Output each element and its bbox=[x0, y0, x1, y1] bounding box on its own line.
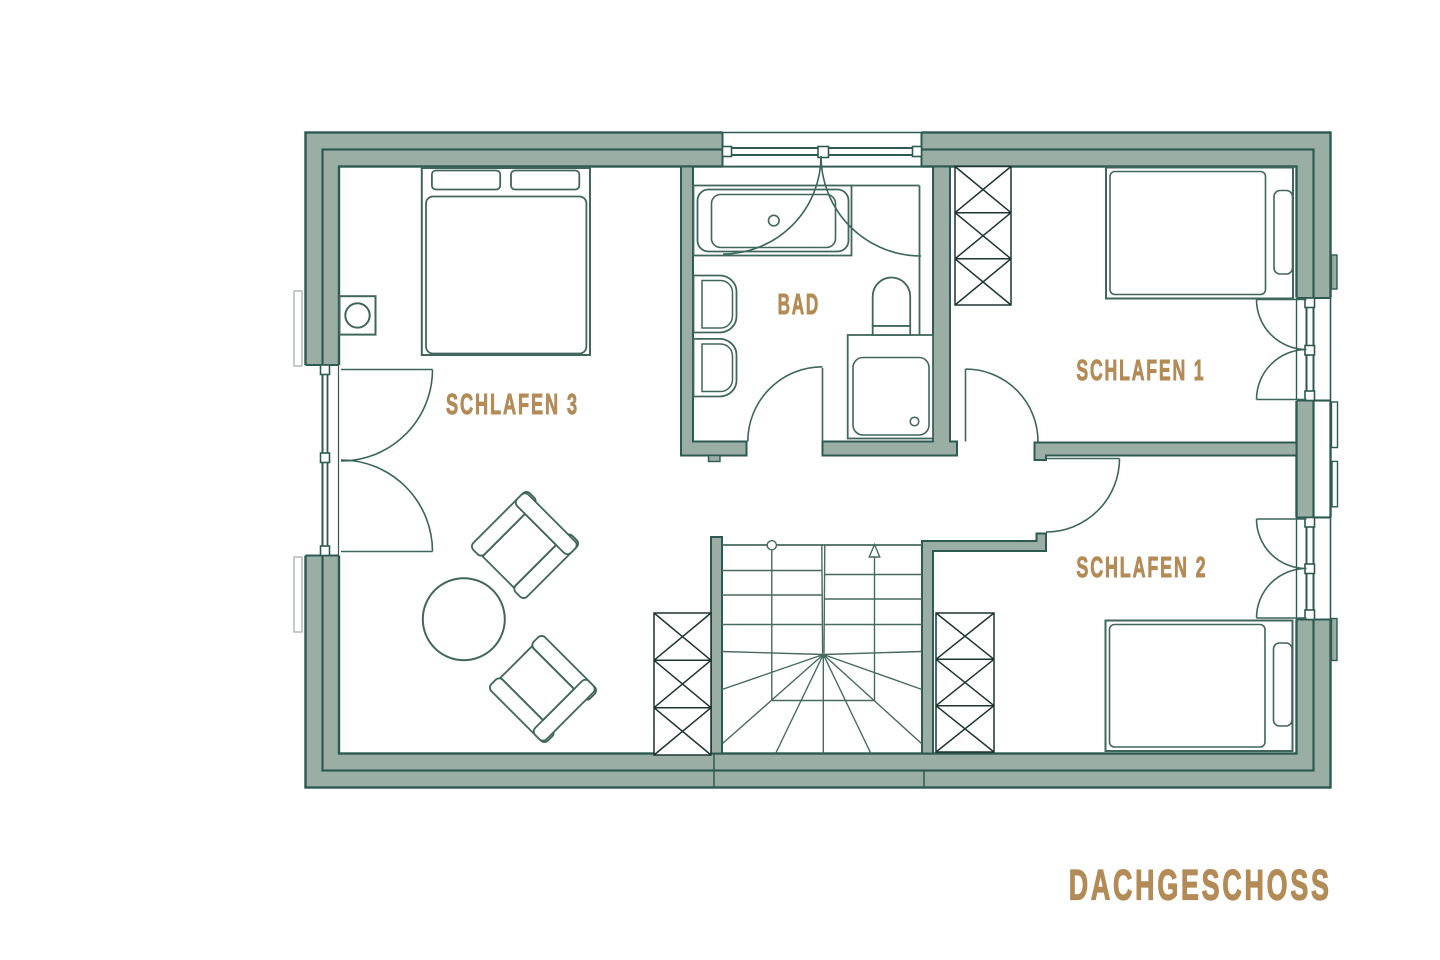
svg-text:SCHLAFEN 1: SCHLAFEN 1 bbox=[1076, 355, 1205, 387]
svg-text:SCHLAFEN 3: SCHLAFEN 3 bbox=[446, 389, 579, 421]
svg-text:SCHLAFEN 2: SCHLAFEN 2 bbox=[1076, 552, 1207, 584]
svg-text:BAD: BAD bbox=[778, 289, 821, 321]
svg-text:DACHGESCHOSS: DACHGESCHOSS bbox=[1069, 862, 1332, 910]
